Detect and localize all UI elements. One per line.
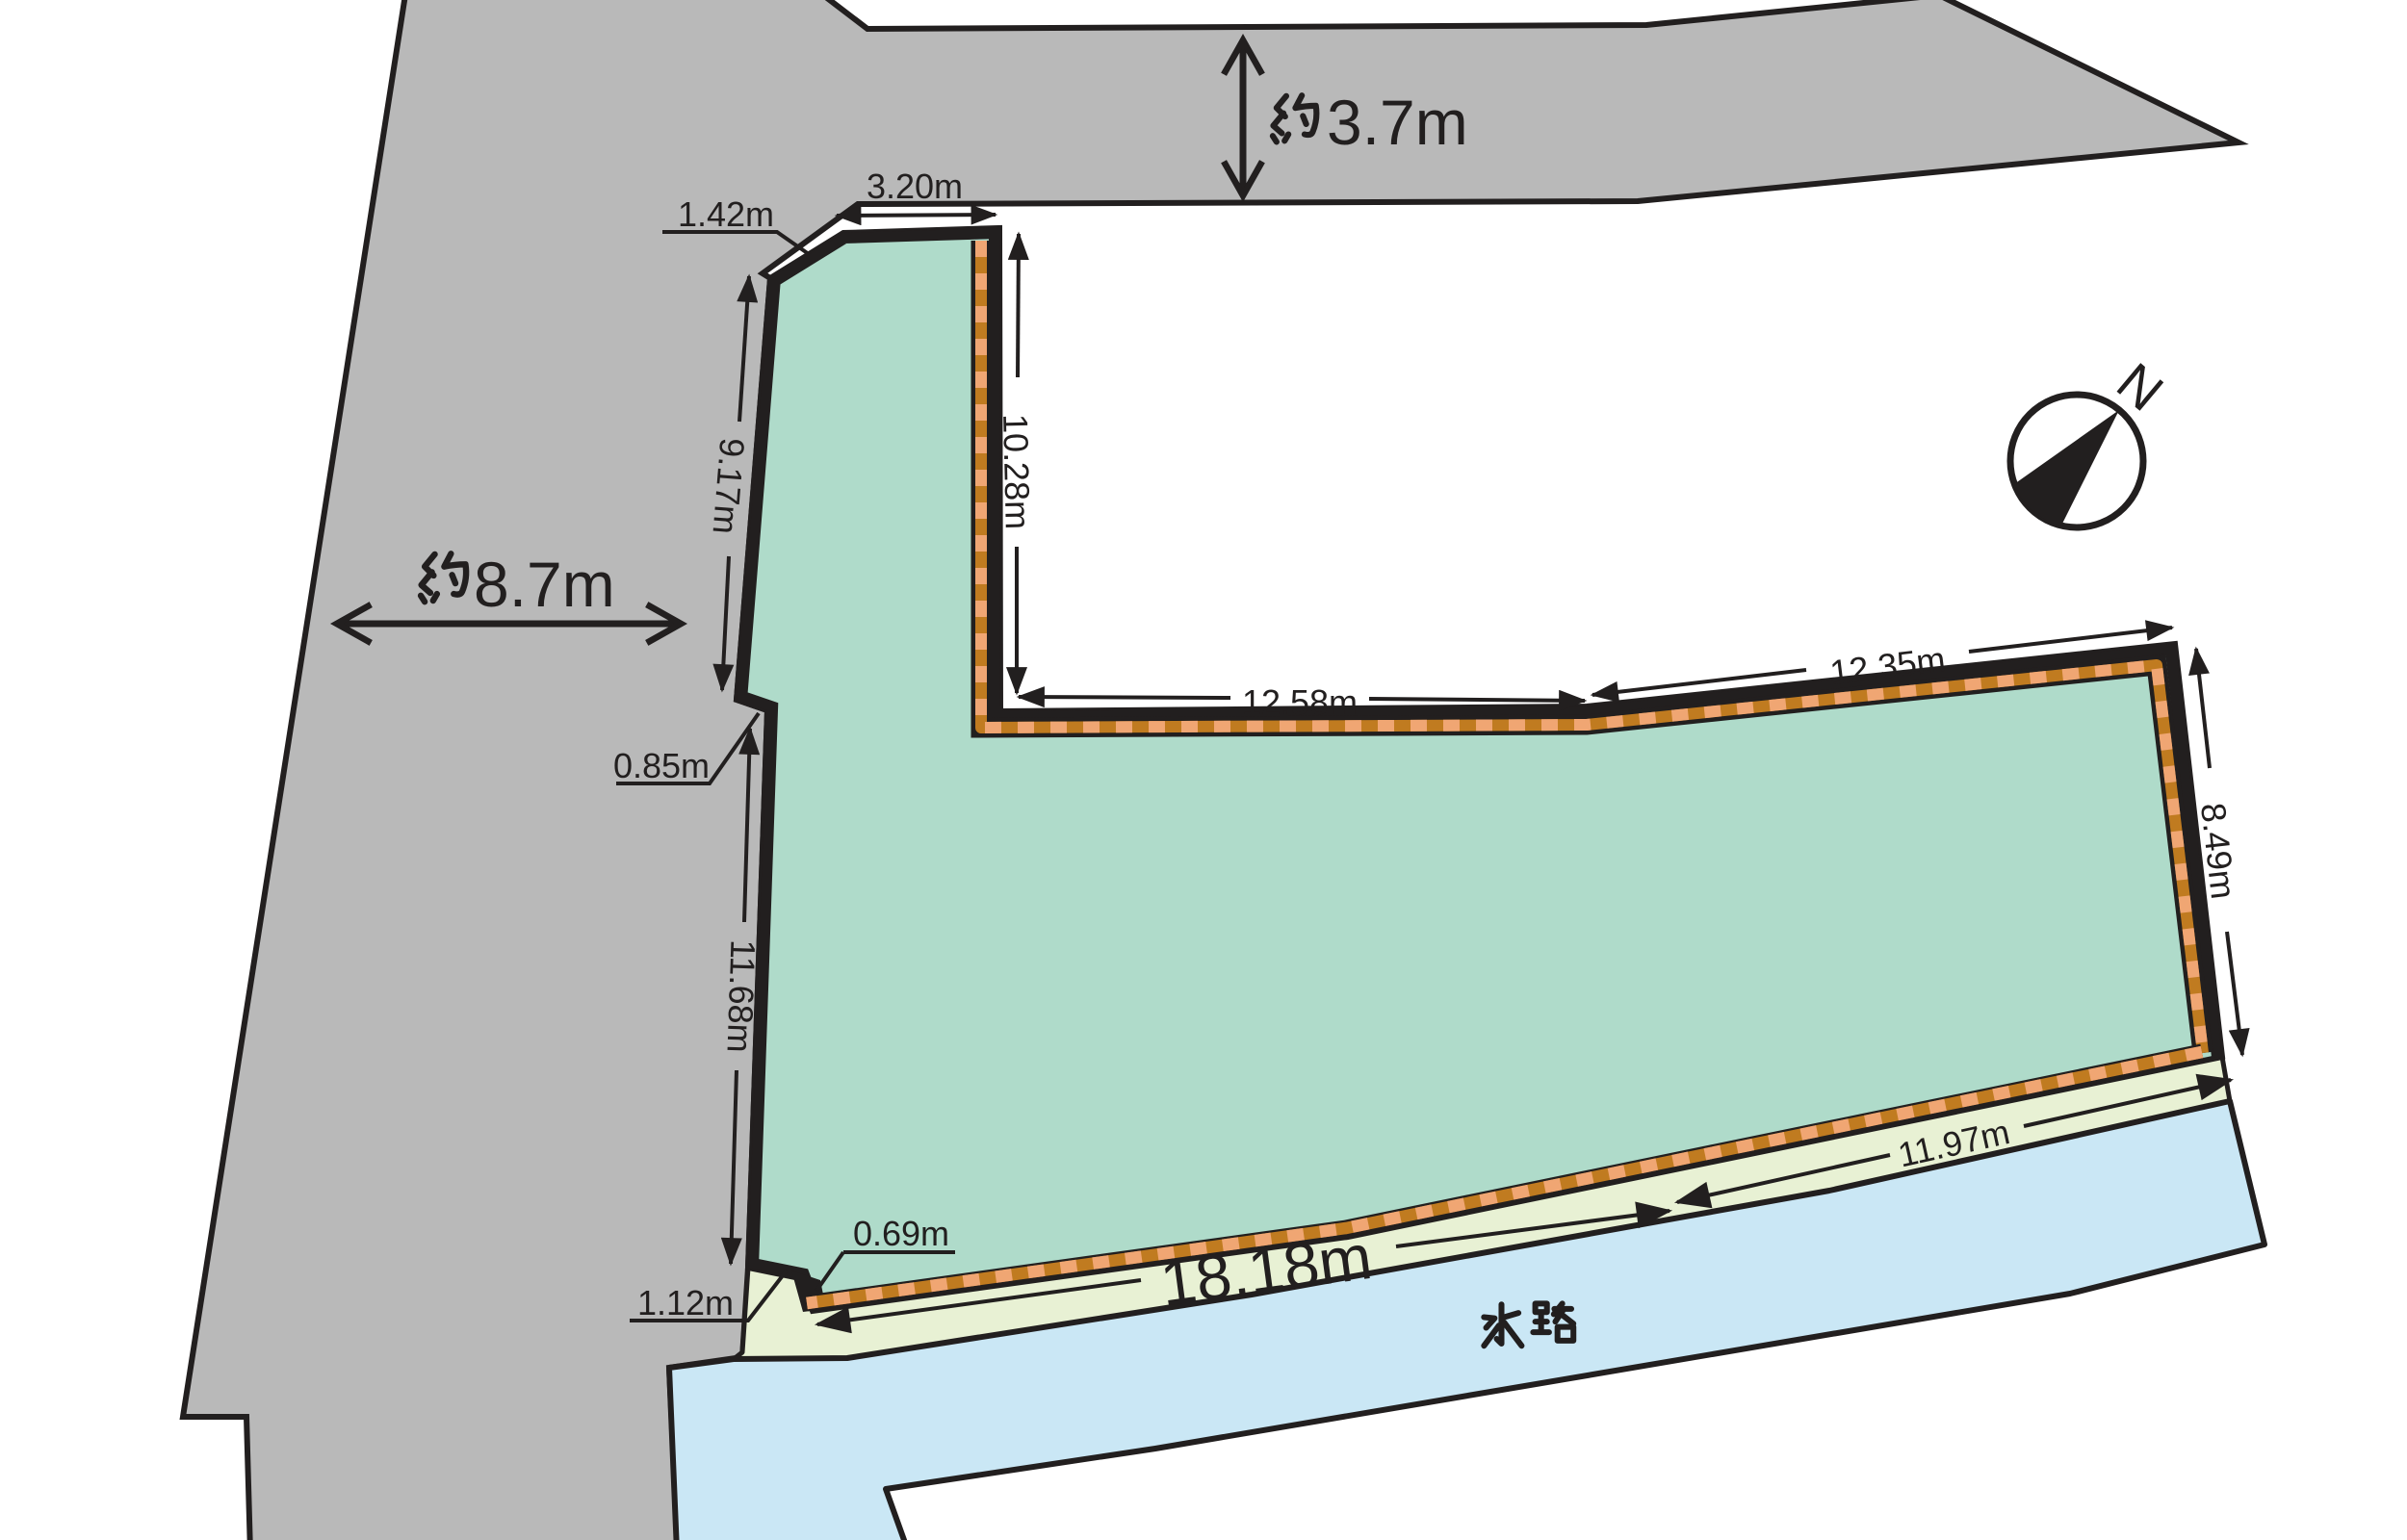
svg-text:1.42m: 1.42m: [678, 194, 774, 234]
svg-text:10.28m: 10.28m: [996, 414, 1038, 530]
svg-text:11.68m: 11.68m: [719, 939, 763, 1054]
svg-text:8.7m: 8.7m: [474, 549, 615, 620]
svg-text:0.69m: 0.69m: [853, 1214, 949, 1253]
svg-text:3.20m: 3.20m: [867, 167, 963, 206]
svg-text:0.85m: 0.85m: [613, 746, 710, 785]
svg-text:9.17m: 9.17m: [706, 436, 753, 535]
svg-text:12.58m: 12.58m: [1242, 682, 1358, 722]
svg-text:3.7m: 3.7m: [1327, 87, 1468, 158]
svg-text:1.12m: 1.12m: [637, 1283, 734, 1322]
